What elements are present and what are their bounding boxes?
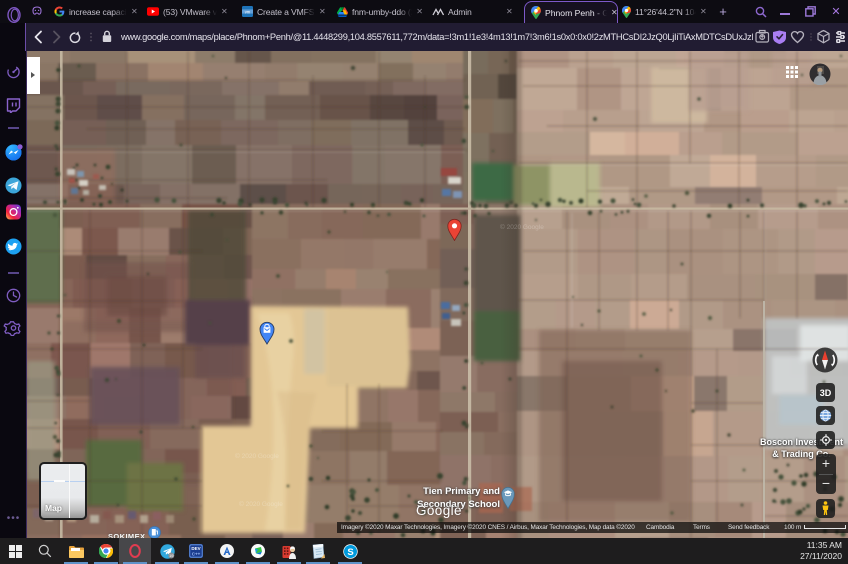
svg-text:© 2020 Google: © 2020 Google bbox=[500, 223, 544, 231]
svg-text:© 2020 Google: © 2020 Google bbox=[239, 500, 283, 508]
svg-text:S: S bbox=[347, 547, 353, 558]
svg-text:C++: C++ bbox=[192, 552, 201, 557]
svg-text:© 2020 Google: © 2020 Google bbox=[235, 452, 279, 460]
svg-text:DEV: DEV bbox=[191, 546, 200, 551]
svg-text:19: 19 bbox=[169, 553, 174, 558]
svg-text:vm: vm bbox=[245, 10, 251, 15]
